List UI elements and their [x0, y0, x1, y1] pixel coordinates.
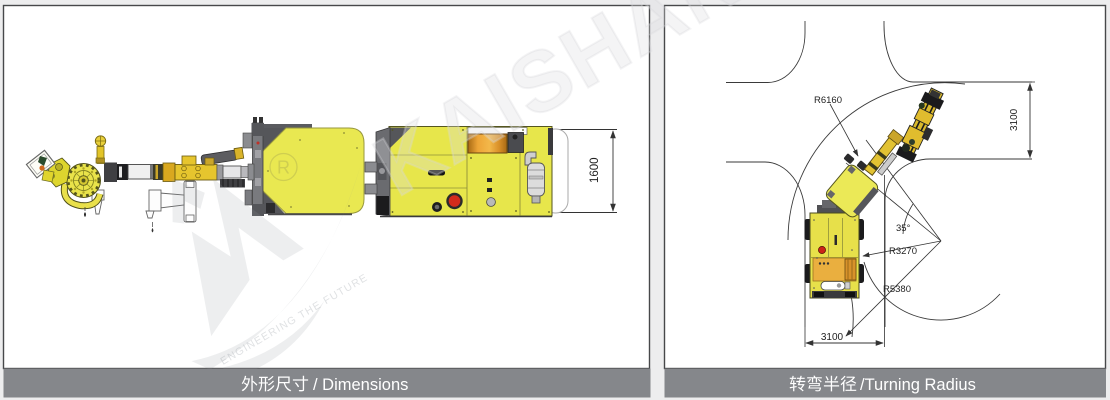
svg-text:3100: 3100 — [821, 332, 844, 343]
svg-text:1600: 1600 — [589, 157, 601, 183]
svg-text:R3270: R3270 — [889, 246, 917, 257]
svg-text:R6160: R6160 — [814, 95, 842, 106]
svg-text:/ Dimensions: / Dimensions — [313, 376, 408, 394]
svg-text:R5380: R5380 — [883, 284, 911, 295]
svg-text:3100: 3100 — [1009, 108, 1020, 131]
svg-text:35°: 35° — [896, 223, 911, 234]
svg-text:/Turning Radius: /Turning Radius — [860, 376, 976, 394]
svg-text:R: R — [277, 158, 290, 178]
